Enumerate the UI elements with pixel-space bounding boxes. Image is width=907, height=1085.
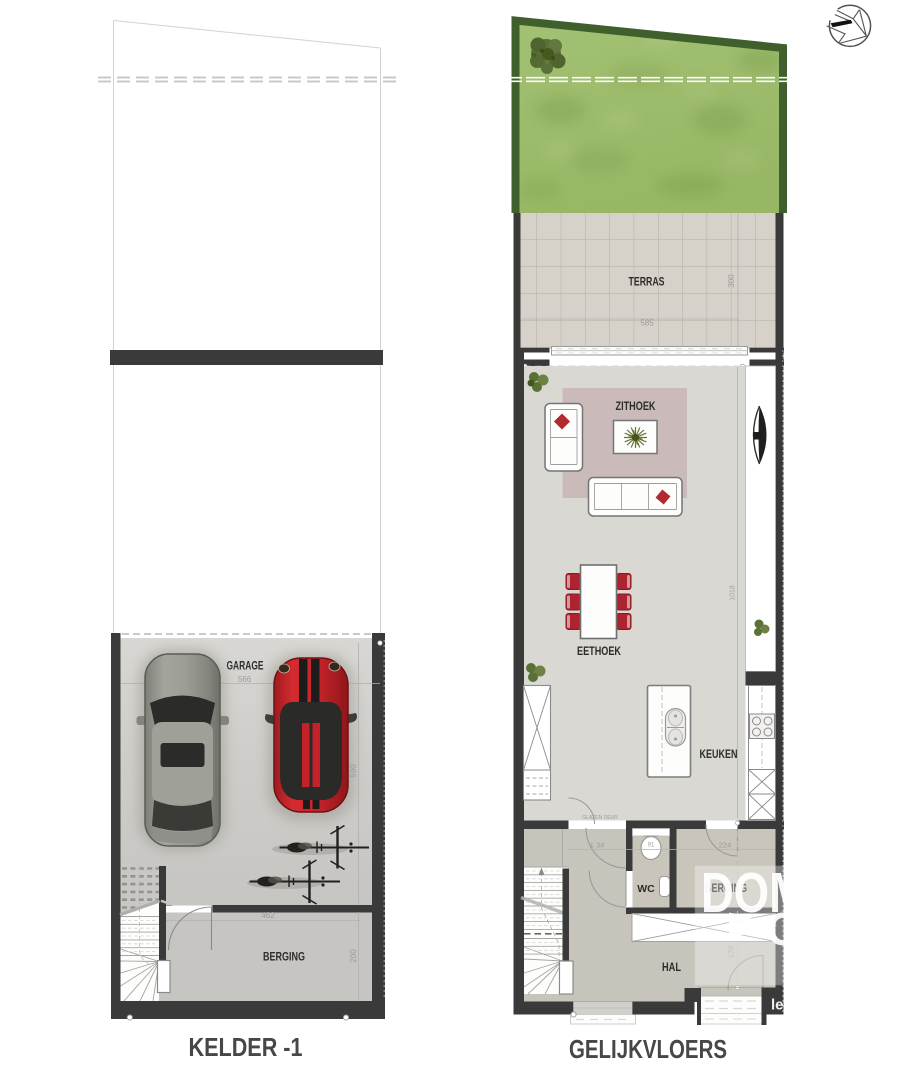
svg-text:462: 462 <box>261 911 275 920</box>
svg-text:ZITHOEK: ZITHOEK <box>616 401 657 413</box>
svg-text:1 34: 1 34 <box>590 841 605 850</box>
svg-text:585: 585 <box>640 319 654 328</box>
svg-text:GELIJKVLOERS: GELIJKVLOERS <box>569 1034 727 1064</box>
svg-text:GLAZEN DEUR: GLAZEN DEUR <box>582 815 618 821</box>
svg-text:KEUKEN: KEUKEN <box>700 749 738 761</box>
svg-text:300: 300 <box>727 274 736 288</box>
svg-text:BERGING: BERGING <box>263 952 305 964</box>
svg-text:EETHOEK: EETHOEK <box>577 646 622 658</box>
svg-text:1018: 1018 <box>730 585 737 601</box>
svg-text:224: 224 <box>719 841 732 850</box>
svg-text:WC: WC <box>637 883 655 895</box>
svg-text:HAL: HAL <box>662 962 681 974</box>
svg-text:GARAGE: GARAGE <box>227 661 264 673</box>
svg-text:200: 200 <box>349 949 358 963</box>
svg-text:le: le <box>771 997 784 1014</box>
svg-text:G: G <box>766 903 802 955</box>
svg-text:TERRAS: TERRAS <box>629 277 665 289</box>
svg-text:566: 566 <box>238 675 252 684</box>
svg-text:KELDER -1: KELDER -1 <box>189 1032 303 1062</box>
svg-text:91: 91 <box>648 843 655 849</box>
